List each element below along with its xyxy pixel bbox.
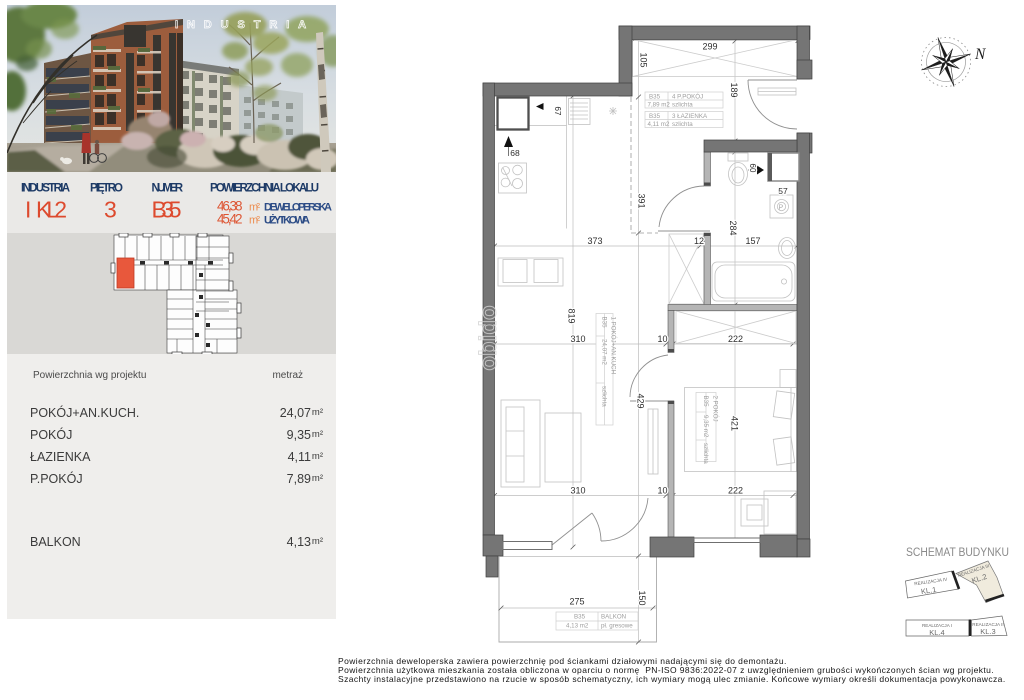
svg-text:1 POKÓJ+AN.KUCH: 1 POKÓJ+AN.KUCH <box>610 317 617 375</box>
svg-text:157: 157 <box>745 236 760 246</box>
svg-text:szlichta: szlichta <box>601 386 608 407</box>
svg-text:24,07 m2: 24,07 m2 <box>601 339 608 365</box>
svg-text:222: 222 <box>728 486 743 496</box>
svg-text:310: 310 <box>570 486 585 496</box>
svg-text:429: 429 <box>636 393 646 408</box>
svg-text:391: 391 <box>637 193 647 208</box>
svg-text:B35: B35 <box>601 317 608 329</box>
svg-text:275: 275 <box>569 597 584 607</box>
svg-text:B35: B35 <box>649 94 661 101</box>
svg-text:10: 10 <box>657 334 667 344</box>
svg-text:7,89 m2: 7,89 m2 <box>648 102 671 109</box>
svg-text:B35: B35 <box>574 614 586 621</box>
svg-text:B35: B35 <box>702 396 709 408</box>
svg-text:szlichta: szlichta <box>672 121 693 128</box>
svg-text:obido: obido <box>475 305 502 370</box>
svg-text:KL.3: KL.3 <box>980 627 995 636</box>
svg-text:KL.4: KL.4 <box>929 628 944 637</box>
svg-text:189: 189 <box>729 82 739 97</box>
svg-text:421: 421 <box>730 416 740 431</box>
svg-text:373: 373 <box>587 236 602 246</box>
svg-text:284: 284 <box>728 220 738 235</box>
svg-text:N: N <box>974 46 987 63</box>
svg-text:KL.1: KL.1 <box>920 585 937 596</box>
svg-text:4,11 m2: 4,11 m2 <box>648 121 670 128</box>
svg-text:68: 68 <box>510 148 520 158</box>
svg-text:150: 150 <box>637 590 647 605</box>
svg-text:2 POKÓJ: 2 POKÓJ <box>712 396 719 422</box>
svg-text:819: 819 <box>567 308 577 323</box>
svg-text:67: 67 <box>553 107 562 116</box>
svg-text:3 ŁAZIENKA: 3 ŁAZIENKA <box>672 113 708 120</box>
svg-text:szlichta: szlichta <box>702 443 709 464</box>
svg-text:BALKON: BALKON <box>601 614 626 621</box>
svg-text:60: 60 <box>748 164 757 173</box>
svg-text:pł. gresowe: pł. gresowe <box>601 623 633 630</box>
svg-text:9,35 m2: 9,35 m2 <box>702 415 709 438</box>
svg-text:SCHEMAT BUDYNKU: SCHEMAT BUDYNKU <box>906 545 1009 559</box>
svg-text:szlichta: szlichta <box>672 102 693 109</box>
svg-text:222: 222 <box>728 334 743 344</box>
svg-text:299: 299 <box>702 42 717 52</box>
svg-text:10: 10 <box>657 486 667 496</box>
svg-text:P: P <box>779 205 784 212</box>
svg-text:310: 310 <box>570 334 585 344</box>
svg-text:12: 12 <box>694 236 704 246</box>
svg-text:4,13 m2: 4,13 m2 <box>566 623 589 630</box>
svg-text:4 P.POKÓJ: 4 P.POKÓJ <box>672 94 703 101</box>
svg-text:B35: B35 <box>649 113 661 120</box>
svg-text:57: 57 <box>778 186 788 196</box>
svg-text:105: 105 <box>639 52 649 67</box>
